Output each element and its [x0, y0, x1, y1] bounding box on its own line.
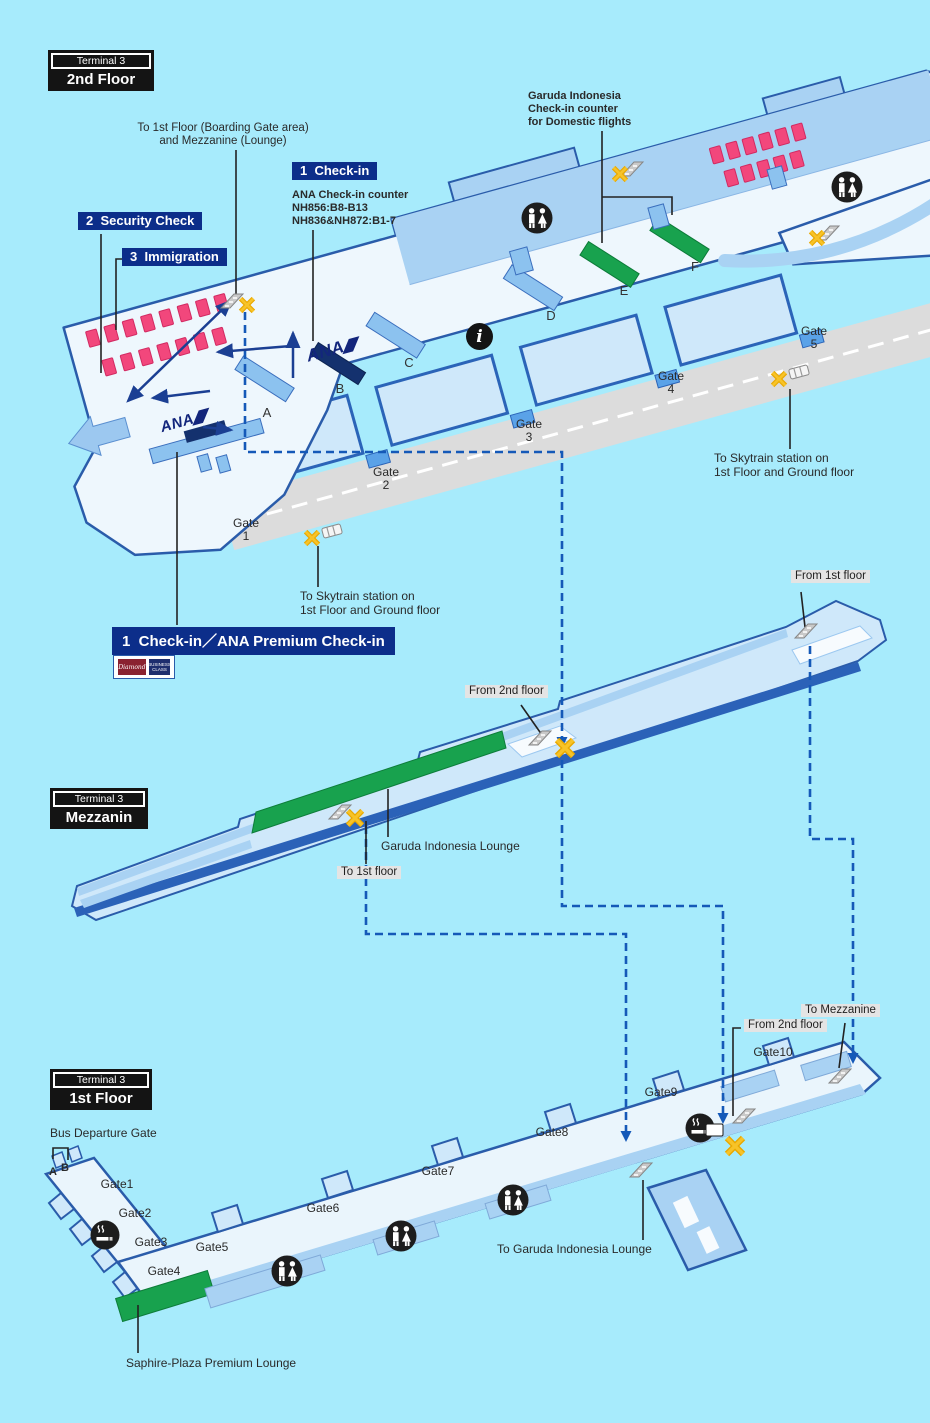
- info-icon: i: [466, 323, 493, 350]
- route-mezz-to-1f-left: [366, 826, 626, 1131]
- smoking-room-sign: [706, 1124, 723, 1136]
- second-floor-building: [23, 29, 930, 587]
- gate-label-2f-1: Gate1: [224, 517, 268, 543]
- badge-terminal: Terminal 3: [53, 791, 145, 807]
- counter-letter-D: D: [543, 309, 559, 323]
- gate-label-2f-2: Gate2: [364, 466, 408, 492]
- terminal-map: Terminal 3 2nd Floor To 1st Floor (Board…: [0, 0, 930, 1423]
- gate-label-1f-8: Gate8: [527, 1125, 577, 1139]
- bus-gate-b: B: [61, 1162, 69, 1175]
- note-to-1st-floor: To 1st Floor (Boarding Gate area) and Me…: [118, 122, 328, 148]
- security-label: 2 Security Check: [78, 212, 202, 230]
- counter-letter-B: B: [332, 382, 348, 396]
- route-1f-to-mezz: [810, 646, 853, 1053]
- ana-swoosh-icon: [343, 336, 360, 354]
- floor-badge-1f: Terminal 3 1st Floor: [50, 1069, 152, 1110]
- from-1st-floor-label: From 1st floor: [791, 570, 870, 583]
- gate-label-1f-2: Gate2: [110, 1206, 160, 1220]
- gate-label-1f-1: Gate1: [92, 1177, 142, 1191]
- gate-label-1f-4: Gate4: [139, 1264, 189, 1278]
- from-2nd-floor-label-1f: From 2nd floor: [744, 1019, 827, 1032]
- badge-floor: 2nd Floor: [51, 69, 151, 88]
- gate-label-1f-10: Gate10: [748, 1045, 798, 1059]
- counter-letter-F: F: [687, 260, 703, 274]
- gate-label-1f-5: Gate5: [187, 1240, 237, 1254]
- from-2nd-floor-label-mezz: From 2nd floor: [465, 685, 548, 698]
- gate-label-1f-7: Gate7: [413, 1164, 463, 1178]
- bus-gate-a: A: [49, 1166, 57, 1179]
- checkin-label: 1 Check-in: [292, 162, 377, 180]
- immigration-label: 3 Immigration: [122, 248, 227, 266]
- premium-checkin-banner: 1 Check-in／ANA Premium Check-in: [112, 627, 395, 655]
- to-garuda-lounge-label: To Garuda Indonesia Lounge: [497, 1242, 652, 1256]
- route-mezz-to-1f-right: [562, 760, 723, 1113]
- bus-departure-gate-label: Bus Departure Gate: [50, 1126, 157, 1140]
- to-1st-floor-label: To 1st floor: [337, 866, 401, 879]
- to-mezzanine-label: To Mezzanine: [801, 1004, 880, 1017]
- mezzanine-frontedge: [74, 662, 861, 917]
- first-floor-building: [46, 1038, 880, 1322]
- garuda-lounge-label: Garuda Indonesia Lounge: [381, 839, 520, 853]
- status-card-logos: Diamond BUSINESS CLASS: [113, 655, 175, 679]
- diamond-logo: Diamond: [118, 659, 146, 675]
- counter-letter-A: A: [259, 406, 275, 420]
- gate-label-1f-9: Gate9: [636, 1085, 686, 1099]
- ana-swoosh-icon: [192, 408, 209, 426]
- gate-label-2f-3: Gate3: [507, 418, 551, 444]
- floor-badge-2f: Terminal 3 2nd Floor: [48, 50, 154, 91]
- badge-terminal: Terminal 3: [53, 1072, 149, 1088]
- skytrain-note-left: To Skytrain station on 1st Floor and Gro…: [300, 589, 440, 617]
- counter-letter-E: E: [616, 284, 632, 298]
- skytrain-note-right: To Skytrain station on 1st Floor and Gro…: [714, 451, 854, 479]
- saphire-lounge-label: Saphire-Plaza Premium Lounge: [126, 1356, 296, 1370]
- gate-label-1f-3: Gate3: [126, 1235, 176, 1249]
- business-class-logo: BUSINESS CLASS: [149, 659, 170, 675]
- counter-letter-C: C: [401, 356, 417, 370]
- gate-label-1f-6: Gate6: [298, 1201, 348, 1215]
- badge-terminal: Terminal 3: [51, 53, 151, 69]
- floor-badge-mezz: Terminal 3 Mezzanin: [50, 788, 148, 829]
- badge-floor: Mezzanin: [53, 807, 145, 826]
- badge-floor: 1st Floor: [53, 1088, 149, 1107]
- ana-counter-note: ANA Check-in counter NH856:B8-B13 NH836&…: [292, 189, 408, 228]
- garuda-counter-note: Garuda Indonesia Check-in counter for Do…: [528, 90, 631, 129]
- gate-label-2f-4: Gate4: [649, 370, 693, 396]
- gate-label-2f-5: Gate5: [792, 325, 836, 351]
